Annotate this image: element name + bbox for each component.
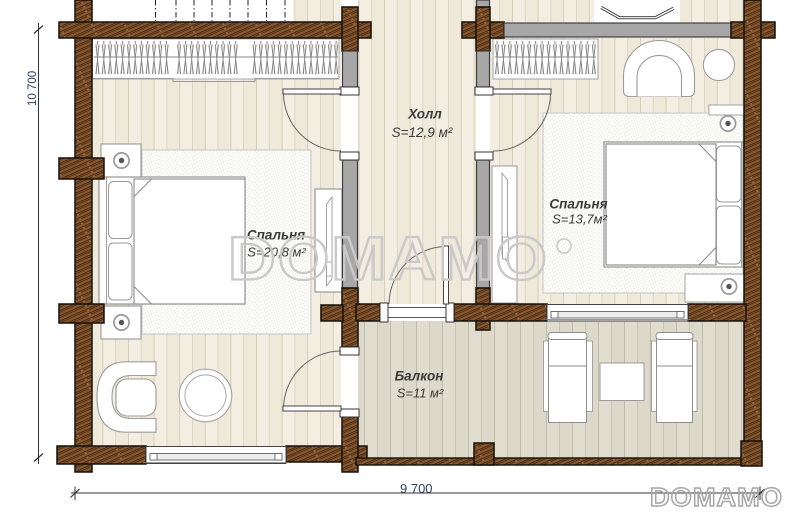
- svg-text:DOMAMO: DOMAMO: [650, 484, 783, 512]
- svg-text:Спальня: Спальня: [549, 197, 607, 212]
- svg-text:10 700: 10 700: [27, 71, 39, 106]
- svg-text:S=12,9 м²: S=12,9 м²: [392, 125, 453, 140]
- svg-text:Балкон: Балкон: [395, 369, 444, 384]
- svg-text:Холл: Холл: [407, 107, 442, 122]
- svg-text:S=11 м²: S=11 м²: [397, 386, 444, 401]
- svg-text:DOMAMO: DOMAMO: [228, 225, 549, 293]
- svg-text:9 700: 9 700: [400, 481, 433, 496]
- svg-text:S=13,7м²: S=13,7м²: [552, 212, 607, 227]
